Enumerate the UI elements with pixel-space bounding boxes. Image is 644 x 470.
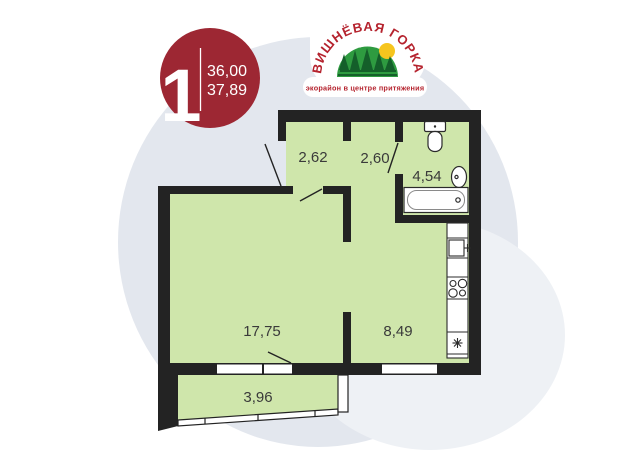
room-label-balcony: 3,96 <box>243 389 272 406</box>
area-value-2: 37,89 <box>207 82 247 99</box>
area-value-1: 36,00 <box>207 63 247 80</box>
sun-icon <box>379 43 395 59</box>
wall-living-top-left <box>170 186 293 194</box>
wall-bath-bottom <box>395 215 469 223</box>
wall-right <box>469 110 481 375</box>
wall-top <box>278 110 481 122</box>
window-kitchen <box>382 365 437 374</box>
room-label-living: 17,75 <box>243 323 281 340</box>
bathroom-sink-icon <box>452 167 467 188</box>
wall-hall-divider <box>343 122 351 141</box>
room-label-kitchen: 8,49 <box>383 323 412 340</box>
room-label-bathroom: 4,54 <box>412 168 441 185</box>
fridge-icon <box>453 338 463 348</box>
wall-mid-lower <box>343 312 351 363</box>
wall-bath-left-upper <box>395 122 403 142</box>
wall-left <box>158 186 170 375</box>
logo-tagline: экорайон в центре притяжения <box>306 84 425 93</box>
balcony-door-opening <box>264 365 292 374</box>
kitchen-fixtures <box>447 223 471 358</box>
window-living <box>217 365 262 374</box>
floorplan-card: 2,62 2,60 4,54 17,75 8,49 3,96 1 36,00 3… <box>0 0 644 470</box>
plan-card: 2,62 2,60 4,54 17,75 8,49 3,96 1 36,00 3… <box>0 0 644 470</box>
wall-entry-stub <box>278 110 286 141</box>
wall-living-top-right <box>323 186 351 194</box>
wall-balcony-left <box>158 375 178 431</box>
room-label-corridor: 2,60 <box>360 150 389 167</box>
balcony-side-glazing <box>338 375 348 412</box>
developer-logo: ВИШНЁВАЯ ГОРКА экорайон в центре притяже… <box>303 19 427 97</box>
rooms-count: 1 <box>160 54 201 137</box>
wall-mid-upper <box>343 194 351 242</box>
room-label-hallway: 2,62 <box>298 149 327 166</box>
bathtub-icon <box>404 188 468 213</box>
